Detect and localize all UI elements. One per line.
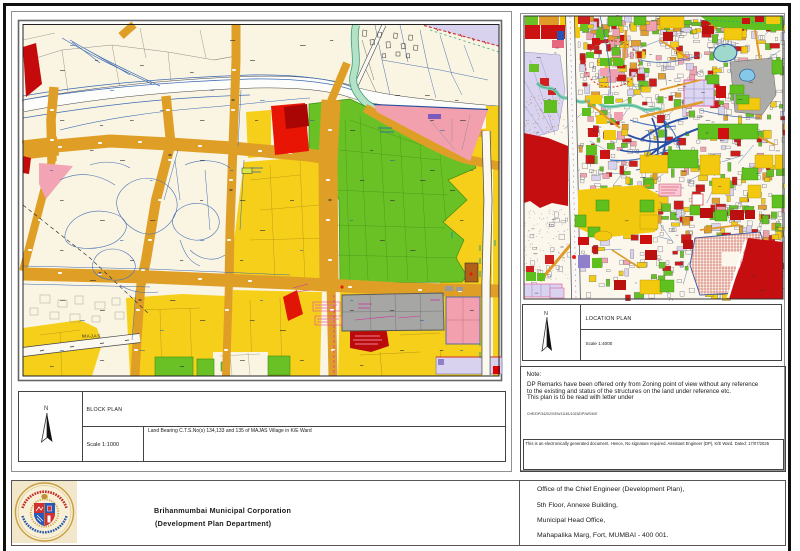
svg-text:MAJAS: MAJAS [82,334,101,340]
svg-text:N: N [544,311,548,317]
svg-text:N: N [44,406,48,412]
